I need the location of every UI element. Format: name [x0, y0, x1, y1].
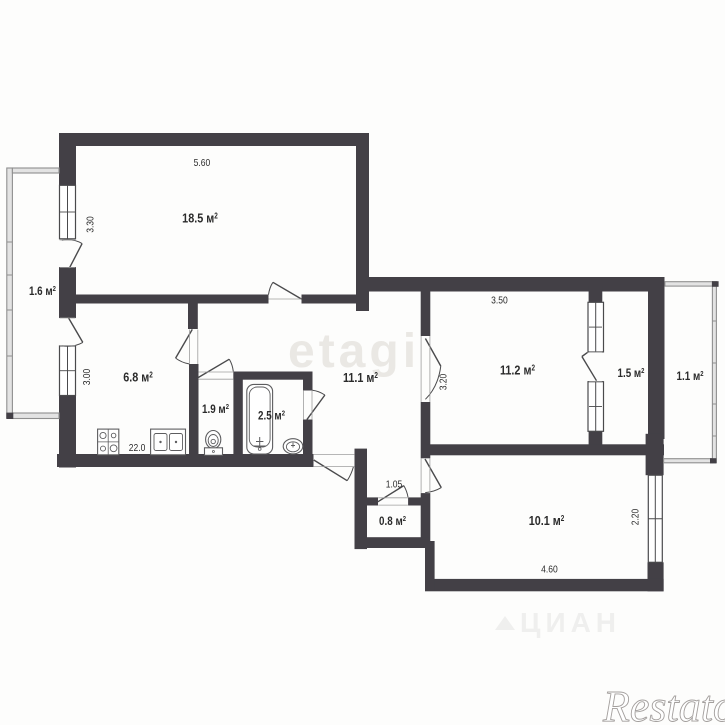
svg-text:2.20: 2.20 — [630, 509, 642, 526]
svg-text:1.6 м2: 1.6 м2 — [29, 285, 56, 298]
svg-text:2.5 м2: 2.5 м2 — [258, 410, 285, 423]
svg-text:11.1 м2: 11.1 м2 — [343, 370, 378, 385]
svg-text:10.1 м2: 10.1 м2 — [529, 513, 565, 528]
svg-text:3.50: 3.50 — [491, 295, 508, 307]
svg-text:Restato: Restato — [602, 682, 725, 725]
svg-text:0.8 м2: 0.8 м2 — [379, 515, 406, 528]
svg-text:3.30: 3.30 — [85, 216, 97, 233]
svg-text:3.00: 3.00 — [81, 369, 93, 386]
svg-text:11.2 м2: 11.2 м2 — [500, 362, 535, 377]
svg-text:1.1 м2: 1.1 м2 — [677, 370, 704, 383]
svg-text:5.60: 5.60 — [194, 157, 211, 169]
svg-text:1.5 м2: 1.5 м2 — [617, 367, 644, 380]
svg-text:ЦИАН: ЦИАН — [520, 607, 621, 638]
svg-text:22.0: 22.0 — [129, 442, 146, 454]
svg-text:18.5 м2: 18.5 м2 — [182, 210, 218, 225]
svg-text:6.8 м2: 6.8 м2 — [123, 369, 153, 384]
svg-text:1.9 м2: 1.9 м2 — [202, 403, 229, 416]
svg-text:4.60: 4.60 — [541, 564, 558, 576]
svg-text:1.05: 1.05 — [386, 479, 403, 491]
svg-text:3.20: 3.20 — [438, 374, 450, 391]
